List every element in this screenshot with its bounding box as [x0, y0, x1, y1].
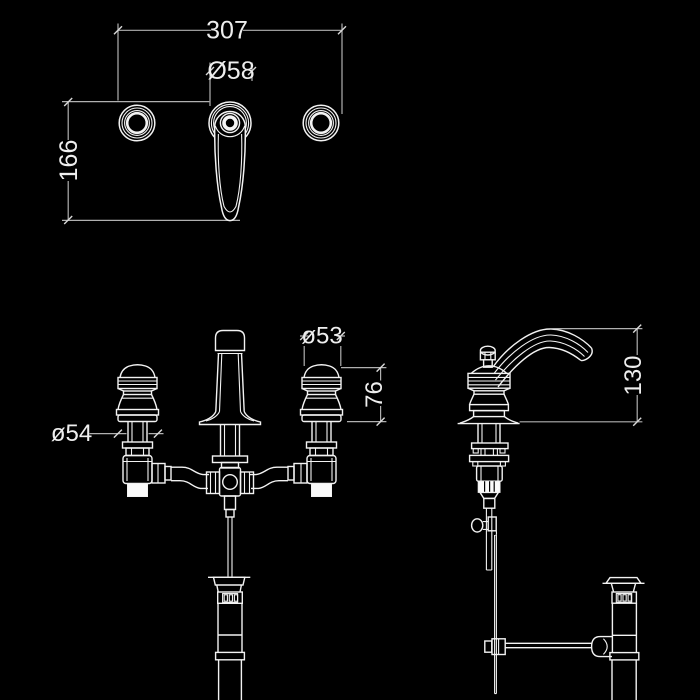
overflow-slot	[623, 595, 626, 601]
hole-right	[303, 105, 339, 141]
spout-column-side	[458, 366, 520, 424]
technical-drawing: 307 Ø58 166	[0, 0, 700, 700]
dimension-rosette-diameter: Ø58	[206, 57, 256, 106]
horizontal-rod	[506, 643, 592, 647]
dimension-label-rosette-diameter: Ø58	[207, 57, 254, 85]
overflow-slot	[224, 595, 227, 601]
spout-curve	[493, 329, 592, 387]
pop-up-rod-front	[228, 517, 232, 577]
dimension-label-handle-height: 76	[361, 381, 388, 408]
overflow-slot	[229, 595, 232, 601]
dimension-right-handle-diameter: ø53	[300, 323, 345, 367]
pop-up-waste-front	[208, 577, 250, 700]
dimension-spout-height: 130	[520, 325, 647, 426]
top-view: 307 Ø58 166	[55, 17, 346, 225]
dimension-label-depth: 166	[55, 140, 83, 182]
spout-shank-side	[470, 424, 509, 570]
handle-left	[117, 365, 172, 497]
overflow-slot	[618, 595, 621, 601]
pop-up-linkage-rod	[485, 535, 612, 694]
overflow-slot	[234, 595, 237, 601]
rod-socket	[592, 637, 612, 657]
overflow-slot	[628, 595, 631, 601]
side-view: 130	[458, 325, 647, 700]
supply-pipe-left	[171, 467, 209, 488]
supply-pipe-right	[250, 467, 288, 488]
dimension-label-spout-height: 130	[620, 355, 647, 395]
handle-right	[288, 365, 343, 497]
dimension-handle-height: 76	[341, 364, 388, 426]
front-view: ø54 ø53 76	[51, 323, 388, 700]
dimension-label-right-handle-diameter: ø53	[301, 323, 342, 350]
mixer-lever	[215, 112, 246, 221]
drawing-canvas: 307 Ø58 166	[0, 0, 700, 700]
mixer-tee-body	[207, 468, 254, 518]
spout-finial	[480, 346, 495, 367]
pop-up-waste-side	[603, 578, 645, 700]
handle-right-port	[288, 464, 307, 484]
hole-left	[119, 105, 155, 141]
dimension-label-overall-width: 307	[206, 17, 248, 45]
handle-left-port	[152, 464, 171, 484]
dimension-label-left-handle-diameter: ø54	[51, 420, 92, 447]
spout-column-front	[200, 331, 261, 469]
pop-up-lever	[472, 517, 497, 536]
